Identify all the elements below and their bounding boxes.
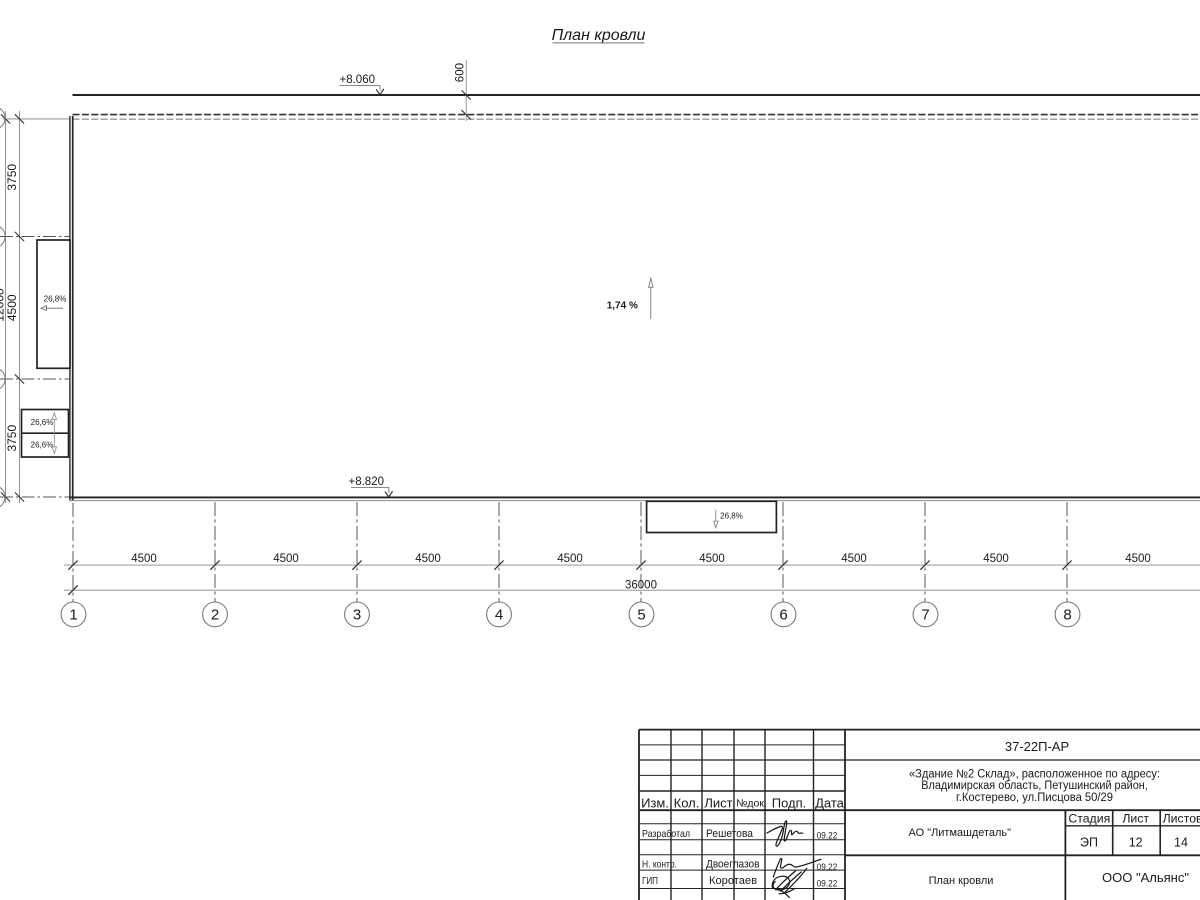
svg-text:4500: 4500 xyxy=(273,553,299,565)
svg-text:+8.060: +8.060 xyxy=(340,74,376,86)
svg-text:2: 2 xyxy=(211,607,219,624)
svg-text:Решетова: Решетова xyxy=(706,828,754,840)
svg-text:3750: 3750 xyxy=(5,425,19,452)
svg-text:4500: 4500 xyxy=(841,553,867,565)
svg-text:1: 1 xyxy=(69,607,77,624)
svg-text:4500: 4500 xyxy=(699,553,725,565)
svg-text:ЭП: ЭП xyxy=(1080,835,1098,849)
svg-text:Н. контр.: Н. контр. xyxy=(642,859,677,870)
svg-text:Лист: Лист xyxy=(1122,811,1149,825)
svg-text:№док.: №док. xyxy=(736,798,767,810)
svg-text:5: 5 xyxy=(637,607,645,624)
svg-text:Двоеглазов: Двоеглазов xyxy=(706,858,760,870)
svg-text:Коротаев: Коротаев xyxy=(709,875,757,887)
svg-text:4500: 4500 xyxy=(131,553,157,565)
svg-text:3750: 3750 xyxy=(5,164,19,191)
svg-text:3: 3 xyxy=(353,607,361,624)
svg-text:4500: 4500 xyxy=(415,553,441,565)
svg-text:12000: 12000 xyxy=(0,288,6,322)
svg-text:Дата: Дата xyxy=(815,796,845,811)
svg-text:26,8%: 26,8% xyxy=(44,295,67,304)
svg-text:4: 4 xyxy=(495,607,503,624)
svg-text:1,74 %: 1,74 % xyxy=(607,301,638,312)
svg-text:АО "Литмашдеталь": АО "Литмашдеталь" xyxy=(909,827,1012,839)
svg-text:План кровли: План кровли xyxy=(552,27,646,44)
svg-text:14: 14 xyxy=(1174,835,1188,849)
svg-text:4500: 4500 xyxy=(983,553,1009,565)
svg-text:600: 600 xyxy=(454,63,466,82)
svg-text:37-22П-АР: 37-22П-АР xyxy=(1005,739,1069,754)
svg-text:«Здание №2 Склад», расположенн: «Здание №2 Склад», расположенное по адре… xyxy=(909,768,1160,780)
svg-text:09.22: 09.22 xyxy=(817,830,838,841)
svg-text:Владимирская область, Петушинс: Владимирская область, Петушинский район, xyxy=(921,780,1148,792)
svg-text:г.Костерево, ул.Писцова 50/29: г.Костерево, ул.Писцова 50/29 xyxy=(956,792,1113,804)
svg-text:План кровли: План кровли xyxy=(929,875,994,887)
svg-text:Листов: Листов xyxy=(1163,811,1200,825)
svg-text:26,6%: 26,6% xyxy=(31,441,54,450)
svg-text:Кол.: Кол. xyxy=(674,796,700,811)
svg-text:7: 7 xyxy=(921,607,929,624)
svg-text:36000: 36000 xyxy=(625,580,657,592)
svg-text:Разработал: Разработал xyxy=(642,828,690,840)
svg-text:4500: 4500 xyxy=(5,294,19,321)
svg-text:26,8%: 26,8% xyxy=(720,511,743,520)
svg-text:4500: 4500 xyxy=(557,553,583,565)
svg-text:+8.820: +8.820 xyxy=(349,476,385,488)
svg-text:ООО "Альянс": ООО "Альянс" xyxy=(1102,870,1189,885)
svg-text:Изм.: Изм. xyxy=(641,796,669,811)
svg-text:ГИП: ГИП xyxy=(642,876,658,887)
svg-text:4500: 4500 xyxy=(1125,553,1151,565)
svg-text:Лист: Лист xyxy=(704,796,732,811)
svg-text:12: 12 xyxy=(1129,835,1143,849)
svg-text:Стадия: Стадия xyxy=(1068,811,1110,825)
svg-text:26,6%: 26,6% xyxy=(31,418,54,427)
svg-text:Подп.: Подп. xyxy=(772,796,807,811)
svg-text:6: 6 xyxy=(779,607,787,624)
svg-text:8: 8 xyxy=(1063,607,1071,624)
svg-text:09.22: 09.22 xyxy=(817,862,838,873)
svg-text:09.22: 09.22 xyxy=(817,879,838,890)
